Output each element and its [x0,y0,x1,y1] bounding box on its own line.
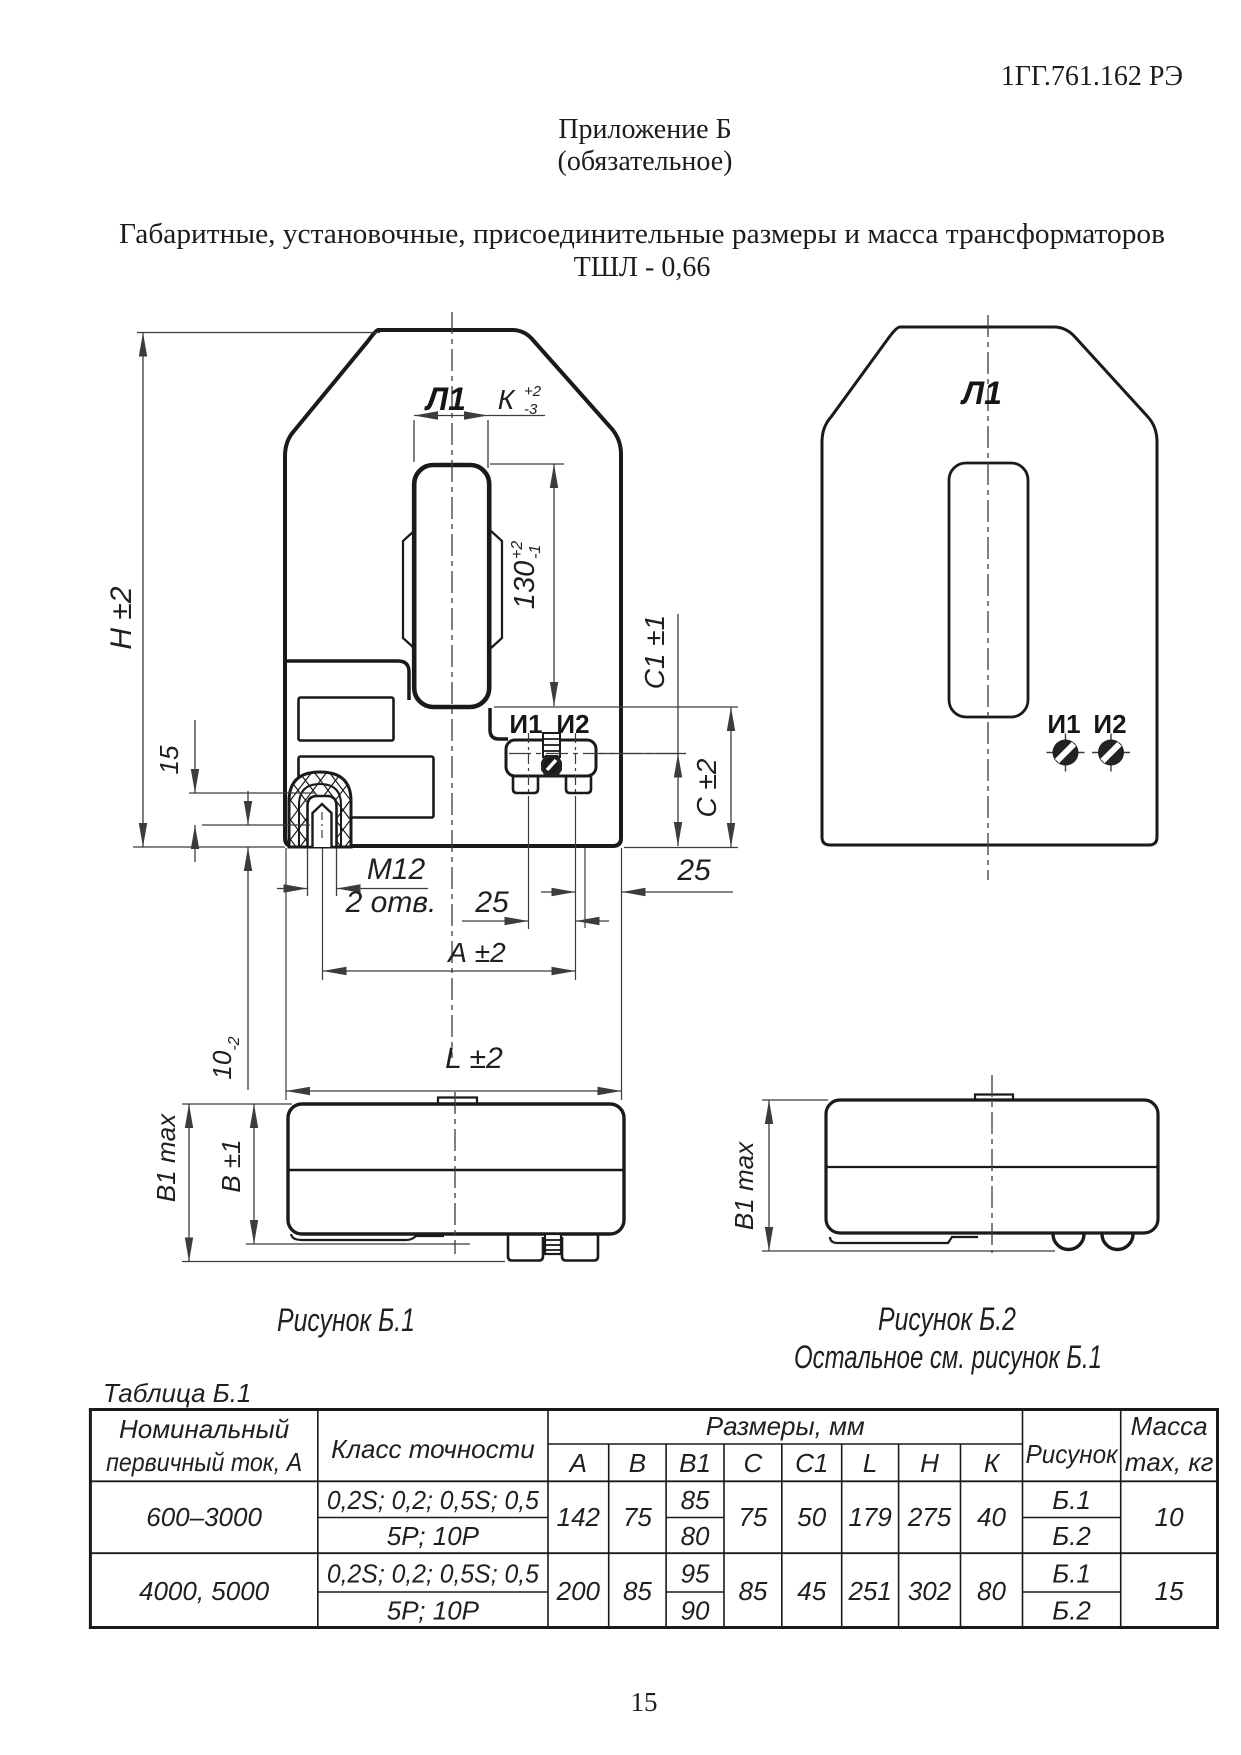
svg-text:85: 85 [681,1485,710,1515]
svg-text:-3: -3 [524,401,538,418]
svg-text:5Р; 10Р: 5Р; 10Р [387,1521,480,1551]
svg-text:В1 max: В1 max [151,1113,181,1202]
svg-text:75: 75 [623,1502,652,1532]
svg-text:К: К [984,1448,1001,1478]
svg-text:5Р; 10Р: 5Р; 10Р [387,1596,480,1626]
svg-text:Класс точности: Класс точности [331,1434,535,1464]
svg-text:Б.1: Б.1 [1052,1485,1091,1515]
svg-text:Л1: Л1 [960,375,1002,411]
svg-text:М12: М12 [367,853,426,886]
svg-text:302: 302 [908,1576,952,1606]
svg-text:10: 10 [1155,1502,1184,1532]
svg-text:Б.1: Б.1 [1052,1559,1091,1589]
svg-text:И1: И1 [509,709,542,739]
svg-text:15: 15 [154,745,184,774]
svg-text:15: 15 [1155,1576,1184,1606]
svg-text:Остальное см. рисунок Б.1: Остальное см. рисунок Б.1 [794,1339,1102,1375]
svg-text:первичный ток, А: первичный ток, А [106,1447,302,1477]
svg-text:И1: И1 [1047,709,1080,739]
svg-text:Л1: Л1 [424,381,466,417]
svg-text:max, кг: max, кг [1125,1447,1214,1477]
svg-text:85: 85 [623,1576,652,1606]
svg-text:80: 80 [977,1576,1006,1606]
svg-text:С ±2: С ±2 [691,758,722,817]
svg-text:А ±2: А ±2 [446,937,506,968]
svg-text:Таблица Б.1: Таблица Б.1 [103,1378,251,1408]
svg-text:С: С [744,1448,763,1478]
svg-text:25: 25 [474,886,509,919]
svg-text:L ±2: L ±2 [445,1042,503,1075]
svg-text:L: L [863,1448,877,1478]
svg-text:И2: И2 [1093,709,1126,739]
svg-text:+2: +2 [509,541,526,559]
svg-text:Номинальный: Номинальный [119,1414,289,1444]
svg-text:Рисунок Б.2: Рисунок Б.2 [878,1301,1016,1337]
svg-text:С1 ±1: С1 ±1 [639,615,670,690]
svg-text:50: 50 [797,1502,826,1532]
svg-text:600–3000: 600–3000 [146,1502,262,1532]
svg-text:Габаритные, установочные, прис: Габаритные, установочные, присоединитель… [119,219,1165,250]
svg-text:4000, 5000: 4000, 5000 [139,1576,270,1606]
svg-text:130: 130 [509,561,541,609]
svg-text:ТШЛ - 0,66: ТШЛ - 0,66 [574,252,711,283]
svg-text:142: 142 [557,1502,601,1532]
svg-text:200: 200 [556,1576,601,1606]
svg-text:80: 80 [681,1521,710,1551]
svg-text:1ГГ.761.162 РЭ: 1ГГ.761.162 РЭ [1001,61,1183,92]
svg-text:Масса: Масса [1131,1411,1208,1441]
svg-text:В1 max: В1 max [729,1141,759,1230]
svg-text:85: 85 [738,1576,767,1606]
svg-text:275: 275 [907,1502,952,1532]
svg-text:К: К [498,384,516,415]
svg-text:40: 40 [977,1502,1006,1532]
svg-text:В1: В1 [679,1448,711,1478]
svg-text:25: 25 [676,854,711,887]
svg-text:45: 45 [797,1576,826,1606]
svg-text:Б.2: Б.2 [1052,1521,1091,1551]
svg-text:Рисунок: Рисунок [1026,1439,1120,1469]
svg-text:Н: Н [920,1448,939,1478]
svg-text:В: В [629,1448,646,1478]
svg-text:С1: С1 [795,1448,828,1478]
svg-text:Приложение Б: Приложение Б [558,114,731,145]
svg-text:Б.2: Б.2 [1052,1596,1091,1626]
svg-text:Размеры, мм: Размеры, мм [706,1411,865,1441]
svg-text:А: А [568,1448,587,1478]
svg-text:-1: -1 [527,545,544,559]
svg-text:+2: +2 [524,383,542,400]
svg-text:95: 95 [681,1559,710,1589]
svg-text:Н ±2: Н ±2 [105,586,138,649]
svg-text:90: 90 [681,1596,710,1626]
svg-text:0,2S; 0,2; 0,5S; 0,5: 0,2S; 0,2; 0,5S; 0,5 [327,1485,540,1515]
svg-text:И2: И2 [556,709,589,739]
svg-text:Рисунок Б.1: Рисунок Б.1 [277,1302,415,1338]
svg-text:75: 75 [738,1502,767,1532]
svg-text:251: 251 [847,1576,891,1606]
svg-text:(обязательное): (обязательное) [558,146,733,177]
svg-text:В ±1: В ±1 [216,1139,246,1192]
svg-text:179: 179 [848,1502,891,1532]
svg-text:15: 15 [631,1687,658,1717]
svg-text:2 отв.: 2 отв. [345,886,437,919]
svg-text:0,2S; 0,2; 0,5S; 0,5: 0,2S; 0,2; 0,5S; 0,5 [327,1559,540,1589]
